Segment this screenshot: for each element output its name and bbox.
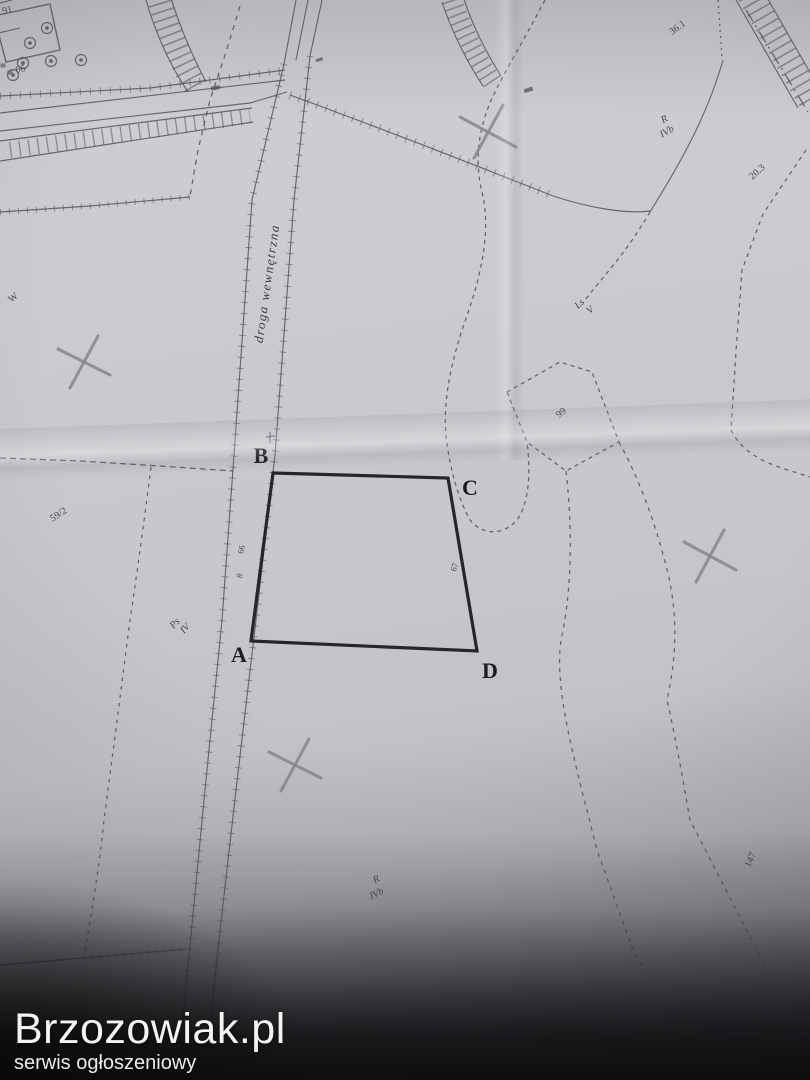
svg-text:Ls: Ls: [572, 297, 587, 312]
watermark-subtitle: serwis ogłoszeniowy: [14, 1052, 286, 1075]
road-edge: [0, 70, 285, 96]
survey-crosses: [58, 105, 736, 791]
map-mark: [8, 71, 12, 74]
boundary-dashed-southeast-2: [560, 471, 708, 1078]
boundary-dashed-west-horizontal: [0, 458, 233, 471]
road-label: droga wewnętrzna: [251, 223, 283, 344]
embankment-rail: [736, 0, 798, 108]
road-edge: [310, 0, 322, 56]
embankment-axis: [746, 10, 808, 112]
road-band-topleft: [0, 70, 287, 161]
boundary-junction-southwest: [0, 949, 186, 965]
label-building-top: 91: [1, 4, 14, 17]
boundary-dashed-west-vertical: [84, 467, 151, 957]
road-top-segment: [284, 0, 322, 64]
road-edge: [296, 0, 308, 60]
road-edge: [0, 92, 287, 131]
road-edge: [0, 80, 285, 113]
tree-icon: [76, 55, 87, 66]
tree-icon: [46, 56, 57, 67]
tree-icon: [25, 38, 36, 49]
corner-label-c: C: [462, 475, 478, 500]
map-svg: droga wewnętrzna B C A D 66 8 67 91 66 W…: [0, 0, 810, 1080]
slope-rail: [463, 0, 501, 76]
survey-cross-icon: [684, 530, 736, 582]
point-label-66: 66: [235, 544, 247, 554]
boundary-dashed: [731, 430, 810, 477]
boundary-dotted: [718, 0, 722, 58]
embankment-hatch: [750, 0, 810, 102]
label-building-number: 66: [14, 63, 26, 76]
boundary-toothed: [84, 949, 186, 958]
map-labels: 91 66 W 59/2 Ps IV Ls V 99 R IVb 36.1 20…: [1, 4, 767, 903]
label-36-1: 36.1: [667, 18, 688, 37]
boundary-dashed: [731, 150, 806, 430]
svg-text:R: R: [370, 873, 381, 886]
survey-tick: [266, 432, 275, 443]
map-mark: [211, 85, 221, 91]
parcel-abcd: B C A D 66 8 67: [231, 432, 498, 683]
label-99: 99: [554, 406, 569, 421]
corner-label-d: D: [482, 658, 498, 683]
tree-icons: [1, 23, 87, 81]
point-label-8: 8: [234, 572, 245, 580]
point-label-67: 67: [448, 561, 460, 572]
svg-text:IVb: IVb: [367, 886, 386, 903]
label-147: 147: [743, 851, 759, 869]
map-mark: [316, 57, 324, 62]
watermark: Brzozowiak.pl serwis ogłoszeniowy: [14, 1006, 286, 1075]
road-right-edge-ticks: [204, 56, 310, 1080]
building-divider: [0, 28, 20, 34]
embankment-topright: [585, 0, 810, 477]
survey-cross-icon: [460, 105, 516, 158]
boundary-toothed-center: [290, 95, 650, 212]
boundary-dashed-southeast-1: [619, 442, 806, 1040]
label-w-mark: W: [6, 290, 21, 305]
map-mark: [524, 87, 534, 94]
map-photo: droga wewnętrzna B C A D 66 8 67 91 66 W…: [0, 0, 810, 1080]
label-soil-r-bottom: R IVb: [361, 873, 387, 902]
label-soil-ps: Ps IV: [167, 613, 194, 639]
label-20-3: 20.3: [747, 162, 767, 182]
survey-cross-icon: [58, 336, 110, 388]
tree-icon: [42, 23, 53, 34]
road-left-edge-ticks: [177, 64, 284, 1080]
embankment-hatch: [10, 116, 250, 150]
parcel-outline: [251, 473, 477, 651]
road-edge-ticks: [0, 70, 285, 96]
corner-label-b: B: [254, 443, 269, 468]
map-mark: [1, 64, 5, 67]
boundary-dashed-topleft: [190, 6, 240, 196]
boundary-dashed: [585, 212, 650, 300]
watermark-title: Brzozowiak.pl: [14, 1006, 286, 1052]
svg-text:IVb: IVb: [657, 124, 676, 141]
boundary-solid: [0, 958, 84, 965]
corner-label-a: A: [231, 642, 247, 667]
slope-hatch-strips: [146, 0, 533, 93]
slope-rail: [146, 0, 188, 92]
label-plot-59-2: 59/2: [48, 505, 69, 524]
label-soil-ls: Ls V: [572, 294, 598, 321]
road-droga-wewnetrzna: droga wewnętrzna: [177, 56, 310, 1080]
label-soil-r-top: R IVb: [651, 113, 676, 141]
road-edge: [284, 0, 296, 64]
survey-cross-icon: [269, 739, 321, 791]
